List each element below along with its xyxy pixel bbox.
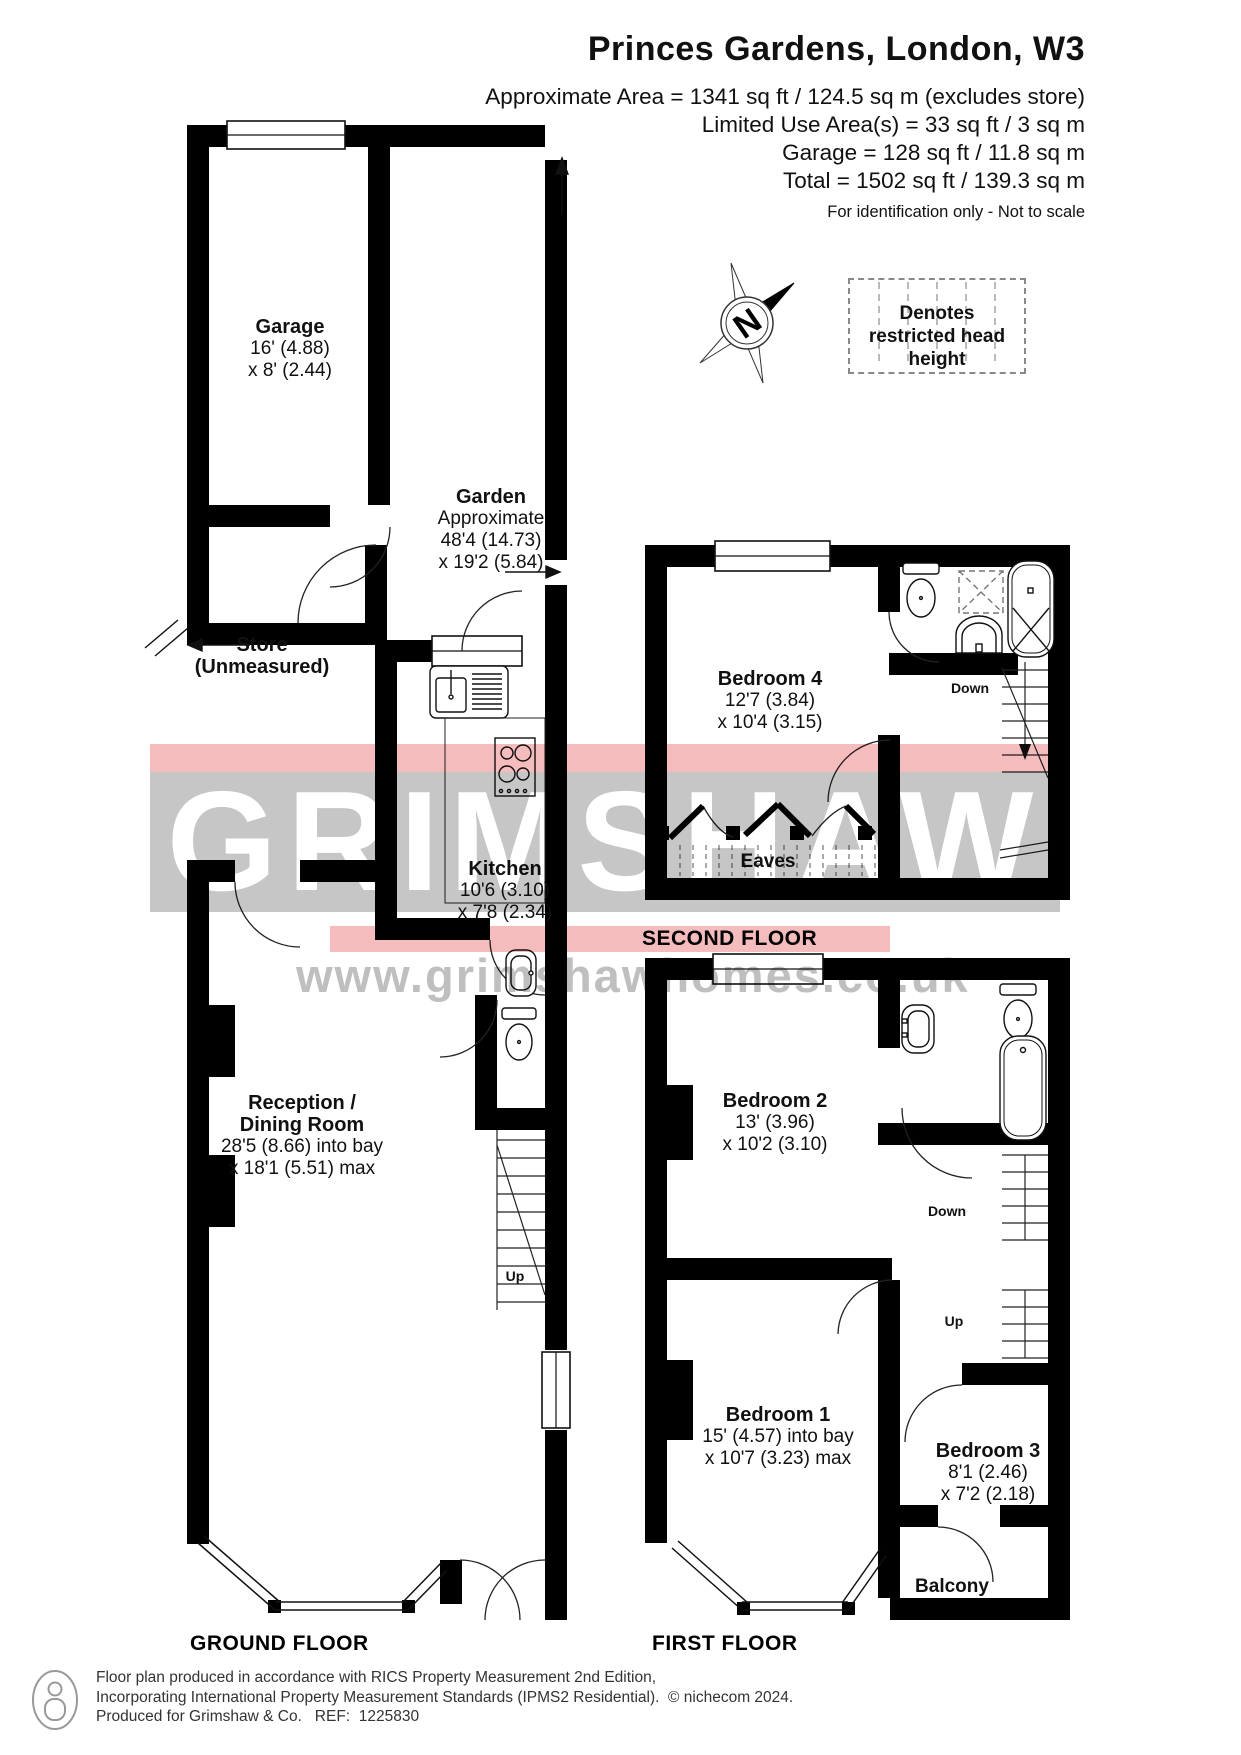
first-floor-bath-icon [1000, 1036, 1046, 1140]
bedroom4-dim1: 12'7 (3.84) [680, 690, 860, 712]
footer-line-2: Incorporating International Property Mea… [96, 1688, 793, 1708]
bedroom2-name: Bedroom 2 [685, 1090, 865, 1112]
kitchen-sink-unit [430, 666, 508, 718]
bedroom3-label: Bedroom 3 8'1 (2.46) x 7'2 (2.18) [903, 1440, 1073, 1506]
bedroom2-label: Bedroom 2 13' (3.96) x 10'2 (3.10) [685, 1090, 865, 1156]
bedroom1-dim2: x 10'7 (3.23) max [673, 1448, 883, 1470]
footer-line-1: Floor plan produced in accordance with R… [96, 1668, 793, 1688]
watermark-brand-text: GRIMSHAW [167, 772, 1044, 912]
bedroom1-label: Bedroom 1 15' (4.57) into bay x 10'7 (3.… [673, 1404, 883, 1470]
reception-name1: Reception / [212, 1092, 392, 1114]
restricted-legend-text: Denotes restricted head height [862, 302, 1012, 371]
page-title: Princes Gardens, London, W3 [485, 30, 1085, 69]
ground-floor-toilet-icon [502, 1008, 536, 1060]
bedroom3-dim1: 8'1 (2.46) [903, 1462, 1073, 1484]
footer-line-3: Produced for Grimshaw & Co. REF: 1225830 [96, 1707, 793, 1727]
bedroom4-label: Bedroom 4 12'7 (3.84) x 10'4 (3.15) [680, 668, 860, 734]
person-icon [30, 1668, 80, 1732]
first-floor-bay-window [672, 1541, 886, 1610]
footer-text: Floor plan produced in accordance with R… [96, 1668, 793, 1727]
header: Princes Gardens, London, W3 Approximate … [485, 30, 1085, 222]
second-floor-toilet-icon [903, 563, 939, 617]
store-note: (Unmeasured) [177, 656, 347, 678]
ground-floor-up-label: Up [495, 1268, 535, 1284]
compass-icon: N [700, 263, 794, 383]
balcony-label: Balcony [906, 1576, 998, 1598]
reception-dim2: x 18'1 (5.51) max [212, 1158, 392, 1180]
first-floor-title: FIRST FLOOR [652, 1632, 798, 1656]
reception-label: Reception / Dining Room 28'5 (8.66) into… [212, 1092, 392, 1180]
first-floor-stairs [1002, 1155, 1048, 1358]
watermark-brand-band: GRIMSHAW [150, 772, 1060, 912]
bedroom3-name: Bedroom 3 [903, 1440, 1073, 1462]
ground-floor-title: GROUND FLOOR [190, 1632, 369, 1656]
garden-dim2: x 19'2 (5.84) [406, 552, 576, 574]
garage-name: Garage [200, 316, 380, 338]
first-floor-basin-icon [902, 1005, 934, 1053]
garden-label: Garden Approximate 48'4 (14.73) x 19'2 (… [406, 486, 576, 574]
garden-name: Garden [406, 486, 576, 508]
first-floor-up-label: Up [934, 1313, 974, 1329]
bedroom2-dim2: x 10'2 (3.10) [685, 1134, 865, 1156]
floorplan-page: N Denotes restricted head height Princes… [0, 0, 1241, 1755]
garden-dim1: 48'4 (14.73) [406, 530, 576, 552]
bedroom2-dim1: 13' (3.96) [685, 1112, 865, 1134]
second-floor-down-label: Down [945, 680, 995, 696]
area-line: Garage = 128 sq ft / 11.8 sq m [485, 139, 1085, 167]
garage-dim1: 16' (4.88) [200, 338, 380, 360]
reception-dim1: 28'5 (8.66) into bay [212, 1136, 392, 1158]
watermark-url-text: www.grimshawhomes.co.uk [296, 948, 970, 1003]
second-floor-bath-icon [1008, 561, 1054, 657]
garage-dim2: x 8' (2.44) [200, 360, 380, 382]
area-line: Limited Use Area(s) = 33 sq ft / 3 sq m [485, 111, 1085, 139]
bedroom4-dim2: x 10'4 (3.15) [680, 712, 860, 734]
store-label: Store (Unmeasured) [177, 634, 347, 678]
first-floor-down-label: Down [922, 1203, 972, 1219]
ground-floor-bay-window [198, 1536, 447, 1610]
bedroom1-name: Bedroom 1 [673, 1404, 883, 1426]
footer: Floor plan produced in accordance with R… [30, 1668, 793, 1732]
shower-icon [959, 571, 1003, 613]
bedroom1-dim1: 15' (4.57) into bay [673, 1426, 883, 1448]
restricted-head-height-legend: Denotes restricted head height [848, 278, 1026, 374]
area-line: Approximate Area = 1341 sq ft / 124.5 sq… [485, 83, 1085, 111]
first-floor-toilet-icon [1000, 984, 1036, 1038]
area-line: Total = 1502 sq ft / 139.3 sq m [485, 167, 1085, 195]
bedroom4-name: Bedroom 4 [680, 668, 860, 690]
garage-label: Garage 16' (4.88) x 8' (2.44) [200, 316, 380, 382]
reception-name2: Dining Room [212, 1114, 392, 1136]
store-name: Store [177, 634, 347, 656]
garden-sub: Approximate [406, 508, 576, 530]
second-floor-basin-icon [956, 616, 1002, 653]
second-floor-title: SECOND FLOOR [642, 927, 817, 951]
scale-note: For identification only - Not to scale [485, 203, 1085, 222]
bedroom3-dim2: x 7'2 (2.18) [903, 1484, 1073, 1506]
